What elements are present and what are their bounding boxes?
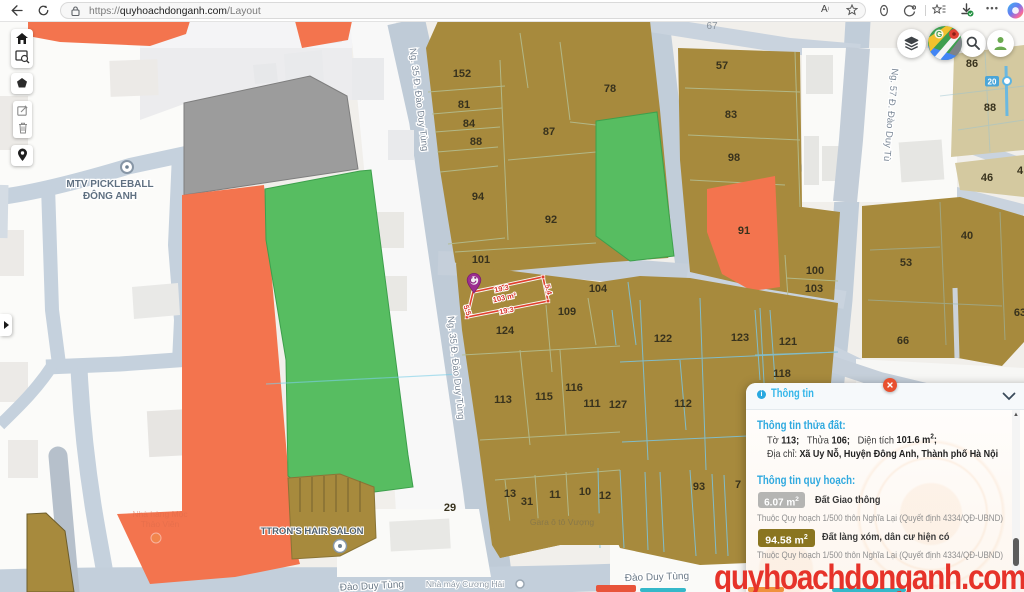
svg-text:84: 84	[463, 118, 476, 130]
svg-text:11: 11	[549, 489, 561, 501]
svg-text:78: 78	[604, 83, 616, 95]
svg-text:92: 92	[545, 214, 557, 226]
svg-text:115: 115	[535, 391, 553, 403]
svg-text:46: 46	[981, 172, 993, 184]
svg-text:Đào Duy Tùng: Đào Duy Tùng	[339, 579, 404, 592]
svg-text:93: 93	[693, 481, 705, 493]
svg-text:29: 29	[444, 502, 456, 514]
svg-text:12: 12	[599, 490, 611, 502]
svg-text:Gara ô tô Vượng: Gara ô tô Vượng	[530, 517, 594, 527]
svg-text:83: 83	[725, 109, 737, 121]
svg-text:127: 127	[609, 399, 627, 411]
svg-text:121: 121	[779, 336, 797, 348]
svg-text:20: 20	[988, 78, 997, 87]
svg-text:113: 113	[494, 394, 512, 406]
svg-text:63: 63	[1014, 307, 1024, 319]
svg-text:4: 4	[1017, 165, 1024, 177]
svg-text:40: 40	[961, 230, 973, 242]
svg-text:Nhà hàng Mộc: Nhà hàng Mộc	[132, 509, 188, 519]
svg-text:124: 124	[496, 325, 515, 337]
svg-text:123: 123	[731, 332, 749, 344]
svg-text:Thảo Viên: Thảo Viên	[141, 519, 180, 529]
svg-text:109: 109	[558, 306, 576, 318]
svg-text:101: 101	[472, 254, 490, 266]
svg-text:Nhà máy Cương Hải: Nhà máy Cương Hải	[426, 579, 504, 589]
svg-text:10: 10	[579, 486, 591, 498]
svg-text:103: 103	[805, 283, 823, 295]
svg-text:87: 87	[543, 126, 555, 138]
svg-text:57: 57	[716, 60, 728, 72]
svg-text:86: 86	[966, 58, 978, 70]
svg-text:31: 31	[521, 496, 533, 508]
svg-text:118: 118	[773, 368, 791, 380]
svg-text:66: 66	[897, 335, 909, 347]
svg-text:7: 7	[735, 479, 741, 491]
svg-text:116: 116	[565, 382, 583, 394]
svg-text:94: 94	[472, 191, 485, 203]
svg-text:MTV PICKLEBALL: MTV PICKLEBALL	[66, 179, 153, 190]
svg-text:TTRON'S HAIR SALON: TTRON'S HAIR SALON	[260, 526, 363, 537]
svg-text:53: 53	[900, 257, 912, 269]
svg-text:104: 104	[589, 283, 608, 295]
svg-text:88: 88	[984, 102, 996, 114]
svg-text:112: 112	[674, 398, 692, 410]
svg-text:13: 13	[504, 488, 516, 500]
svg-text:152: 152	[453, 68, 471, 80]
svg-text:91: 91	[738, 225, 750, 237]
svg-text:Đào Duy Tùng: Đào Duy Tùng	[625, 571, 690, 584]
svg-text:ĐÔNG ANH: ĐÔNG ANH	[83, 189, 137, 202]
svg-text:G: G	[936, 30, 942, 39]
svg-text:122: 122	[654, 333, 672, 345]
svg-text:88: 88	[470, 136, 482, 148]
svg-text:67: 67	[706, 21, 718, 32]
svg-text:98: 98	[728, 152, 740, 164]
svg-text:81: 81	[458, 99, 470, 111]
svg-text:100: 100	[806, 265, 824, 277]
svg-text:111: 111	[583, 398, 600, 410]
